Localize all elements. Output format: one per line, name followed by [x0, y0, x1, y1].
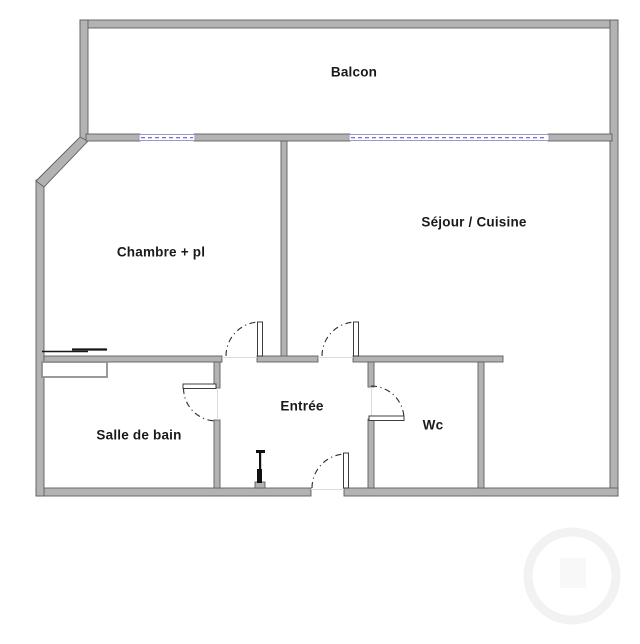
bathroom-niche [42, 362, 107, 377]
wall-left [36, 180, 44, 496]
door-arc-sejour [322, 322, 356, 356]
room-label-balcon: Balcon [331, 65, 377, 80]
room-label-wc: Wc [423, 418, 444, 433]
room-label-entree: Entrée [280, 399, 323, 414]
door-leaf-sejour [354, 322, 359, 356]
wall-wc-left-bottom [368, 419, 374, 488]
door-leaf-wc [369, 416, 404, 421]
wall-corridor-middle [257, 356, 318, 362]
entry-fixture-symbol [256, 450, 265, 483]
wall-diagonal-chamfer [36, 137, 88, 187]
entry-fixture-stem [259, 453, 261, 469]
door-leaf-bathroom [183, 384, 216, 389]
room-label-salle-de-bain: Salle de bain [96, 428, 181, 443]
wall-wc-right [478, 362, 484, 488]
wall-top [80, 20, 618, 28]
floor-plan-drawing [0, 0, 640, 644]
door-arc-entry [312, 454, 346, 488]
door-arc-bathroom [184, 388, 217, 421]
watermark-mark [560, 558, 586, 588]
door-leaf-chambre [258, 322, 263, 356]
wall-chambre-sejour-divider [281, 141, 287, 361]
door-arc-wc [371, 386, 404, 419]
room-label-sejour-cuisine: Séjour / Cuisine [421, 215, 526, 230]
wall-bathroom-right-bottom [214, 420, 220, 488]
watermark [528, 532, 616, 620]
entry-fixture-cap [256, 450, 265, 453]
wall-balcony-left [80, 20, 88, 141]
room-label-chambre: Chambre + pl [117, 245, 205, 260]
door-arc-chambre [226, 322, 260, 356]
wall-bottom-right-of-entry-door [344, 488, 618, 496]
wall-facade-segment-3 [548, 134, 612, 141]
wall-wc-left-top [368, 362, 374, 387]
wall-facade-segment-2 [194, 134, 350, 141]
floor-plan: Balcon Séjour / Cuisine Chambre + pl Sal… [0, 0, 640, 644]
wall-facade-segment-1 [86, 134, 140, 141]
door-leaf-entry [344, 453, 349, 488]
wall-corridor-right [353, 356, 503, 362]
wall-right [610, 20, 618, 496]
entry-fixture-bar [257, 469, 262, 483]
wall-bottom-left-of-entry-door [36, 488, 311, 496]
